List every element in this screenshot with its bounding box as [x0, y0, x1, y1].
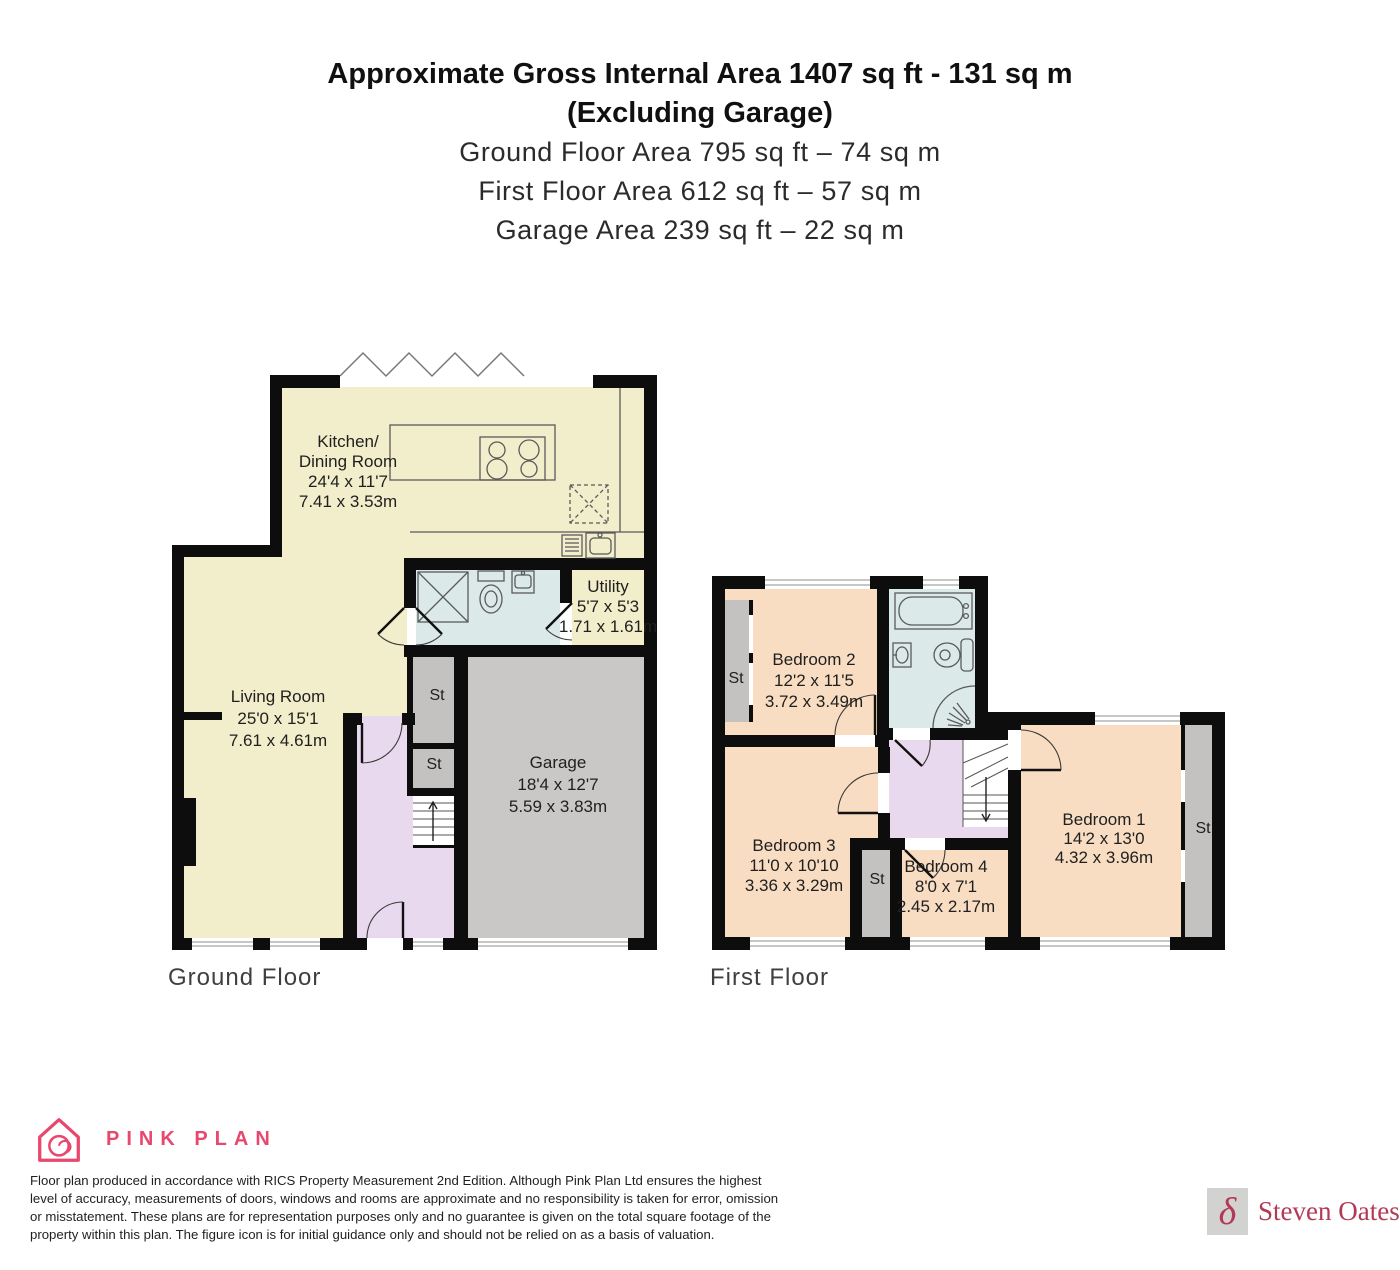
agent-name: Steven Oates — [1258, 1196, 1400, 1227]
title-line-1: Approximate Gross Internal Area 1407 sq … — [0, 55, 1400, 94]
floorplan-page: Approximate Gross Internal Area 1407 sq … — [0, 0, 1400, 1270]
bedroom1-label: Bedroom 1 14'2 x 13'0 4.32 x 3.96m — [1055, 810, 1153, 867]
living-room-name: Living Room — [229, 686, 327, 708]
agent-brand: δ Steven Oates — [1207, 1188, 1400, 1235]
kitchen-metric: 7.41 x 3.53m — [299, 492, 397, 512]
bedroom3-name: Bedroom 3 — [745, 836, 843, 856]
living-room-metric: 7.61 x 4.61m — [229, 730, 327, 752]
living-room-imperial: 25'0 x 15'1 — [229, 708, 327, 730]
ground-room-fills — [184, 387, 644, 938]
bedroom1-metric: 4.32 x 3.96m — [1055, 848, 1153, 867]
first-floor-area-line: First Floor Area 612 sq ft – 57 sq m — [0, 172, 1400, 211]
garage-label: Garage 18'4 x 12'7 5.59 x 3.83m — [509, 752, 607, 818]
bedroom3-label: Bedroom 3 11'0 x 10'10 3.36 x 3.29m — [745, 836, 843, 896]
garage-name: Garage — [509, 752, 607, 774]
stairs-down — [963, 740, 1008, 827]
front-door-opening — [367, 938, 403, 950]
utility-name: Utility — [559, 577, 657, 597]
disclaimer-line-1: Floor plan produced in accordance with R… — [30, 1172, 778, 1190]
utility-imperial: 5'7 x 5'3 — [559, 597, 657, 617]
living-room-label: Living Room 25'0 x 15'1 7.61 x 4.61m — [229, 686, 327, 752]
header: Approximate Gross Internal Area 1407 sq … — [0, 55, 1400, 250]
ground-floor-title: Ground Floor — [168, 964, 321, 992]
utility-label: Utility 5'7 x 5'3 1.71 x 1.61m — [559, 577, 657, 637]
ground-floor-drawing — [160, 345, 670, 970]
ground-floor-area-line: Ground Floor Area 795 sq ft – 74 sq m — [0, 133, 1400, 172]
bedroom34-storage-label: St — [869, 871, 884, 889]
stairs-up — [413, 796, 454, 845]
ground-floor-plan — [160, 345, 670, 970]
disclaimer-line-4: property within this plan. The figure ic… — [30, 1226, 778, 1244]
bedroom4-metric: 2.45 x 2.17m — [897, 897, 995, 917]
bedroom1-storage-label: St — [1195, 820, 1210, 838]
pink-plan-logo-icon — [30, 1112, 88, 1166]
kitchen-name-2: Dining Room — [299, 452, 397, 472]
disclaimer-line-2: level of accuracy, measurements of doors… — [30, 1190, 778, 1208]
bedroom1-door-opening — [1008, 730, 1021, 770]
disclaimer-line-3: or misstatement. These plans are for rep… — [30, 1208, 778, 1226]
bedroom4-name: Bedroom 4 — [897, 857, 995, 877]
open-boundary-zigzag — [340, 353, 524, 376]
bedroom2-name: Bedroom 2 — [765, 649, 863, 670]
bedroom2-storage-label: St — [728, 670, 743, 688]
bedroom2-label: Bedroom 2 12'2 x 11'5 3.72 x 3.49m — [765, 649, 863, 712]
ground-storage1-label: St — [429, 687, 444, 705]
disclaimer: Floor plan produced in accordance with R… — [30, 1172, 778, 1244]
delta-icon: δ — [1219, 1193, 1237, 1231]
first-floor-title: First Floor — [710, 964, 829, 992]
bedroom4-imperial: 8'0 x 7'1 — [897, 877, 995, 897]
bedroom1-name: Bedroom 1 — [1055, 810, 1153, 829]
utility-metric: 1.71 x 1.61m — [559, 617, 657, 637]
bedroom2-metric: 3.72 x 3.49m — [765, 691, 863, 712]
agent-logo-box: δ — [1207, 1188, 1248, 1235]
bedroom2-imperial: 12'2 x 11'5 — [765, 670, 863, 691]
pink-plan-wordmark: PINK PLAN — [106, 1128, 277, 1151]
kitchen-label: Kitchen/ Dining Room 24'4 x 11'7 7.41 x … — [299, 432, 397, 512]
title-line-2: (Excluding Garage) — [0, 94, 1400, 133]
garage-area-line: Garage Area 239 sq ft – 22 sq m — [0, 211, 1400, 250]
bedroom1-imperial: 14'2 x 13'0 — [1055, 829, 1153, 848]
garage-door-opening — [478, 938, 628, 950]
garage-imperial: 18'4 x 12'7 — [509, 774, 607, 796]
pink-plan-brand: PINK PLAN — [30, 1112, 277, 1166]
bedroom4-label: Bedroom 4 8'0 x 7'1 2.45 x 2.17m — [897, 857, 995, 917]
bedroom3-metric: 3.36 x 3.29m — [745, 876, 843, 896]
ground-storage2-label: St — [426, 756, 441, 774]
garage-metric: 5.59 x 3.83m — [509, 796, 607, 818]
bedroom3-imperial: 11'0 x 10'10 — [745, 856, 843, 876]
kitchen-imperial: 24'4 x 11'7 — [299, 472, 397, 492]
kitchen-name-1: Kitchen/ — [299, 432, 397, 452]
